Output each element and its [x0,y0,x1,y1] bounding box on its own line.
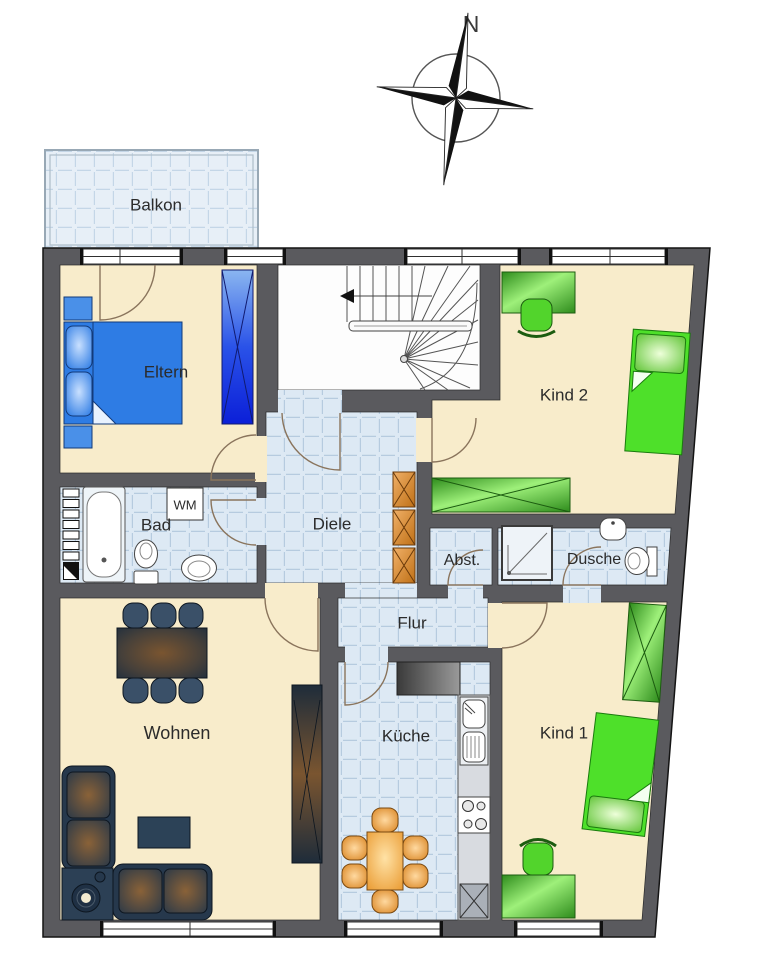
fridge [460,884,488,918]
vase-icon [95,872,105,882]
kitchen-sink [460,697,488,765]
nightstand [64,297,92,320]
label-kind1: Kind 1 [540,723,588,742]
label-eltern: Eltern [144,362,188,381]
cabinet-orange [393,472,415,507]
washing-machine: WM [167,488,203,520]
shaft-symbol-icon [63,562,79,580]
radiator [63,489,79,560]
toilet-dusche [625,547,657,576]
label-diele: Diele [313,514,352,533]
floor-plan-svg: N [0,0,768,969]
cabinet-orange [393,510,415,545]
window-wohnen [100,921,276,937]
compass-rose-icon: N [365,2,546,196]
window-eltern [224,248,286,265]
dining-table [117,628,207,678]
bed-kind2 [625,329,690,455]
side-table-with-lamp [62,868,113,920]
wardrobe-eltern [222,270,253,424]
washing-machine-label: WM [173,497,196,512]
kitchen-counter-top [397,662,460,695]
label-wohnen: Wohnen [144,723,211,743]
bed-kind1 [582,713,659,837]
bathtub [83,487,125,582]
window-kind2 [549,248,668,265]
label-dusche: Dusche [567,551,621,568]
window-staircase [404,248,521,265]
toilet-bad [134,540,158,584]
window-kueche [344,921,443,937]
sideboard-kind2 [432,478,570,512]
label-flur: Flur [397,613,427,632]
label-kueche: Küche [382,726,430,745]
sink-bad [182,555,217,581]
cabinets-diele [393,472,415,583]
label-bad: Bad [141,515,171,534]
label-abstellraum: Abst. [444,552,480,569]
wardrobe-kind1 [623,603,667,702]
stove [458,797,490,833]
wall-unit [292,685,322,863]
hand-sink [600,518,626,540]
dining-chairs-bottom [123,678,203,703]
label-balkon: Balkon [130,195,182,214]
room-flur-connector-floor [345,583,417,599]
dining-chairs-top [123,603,203,628]
shower-tray [502,526,552,580]
cabinet-orange [393,548,415,583]
floor-plan-image: N [0,0,768,969]
nightstand [64,426,92,448]
window-balcony-door [80,248,183,265]
desk-kind1 [502,875,575,918]
kitchen-table [367,832,403,890]
coffee-table [138,817,190,848]
label-kind2: Kind 2 [540,385,588,404]
window-kind1 [514,921,603,937]
